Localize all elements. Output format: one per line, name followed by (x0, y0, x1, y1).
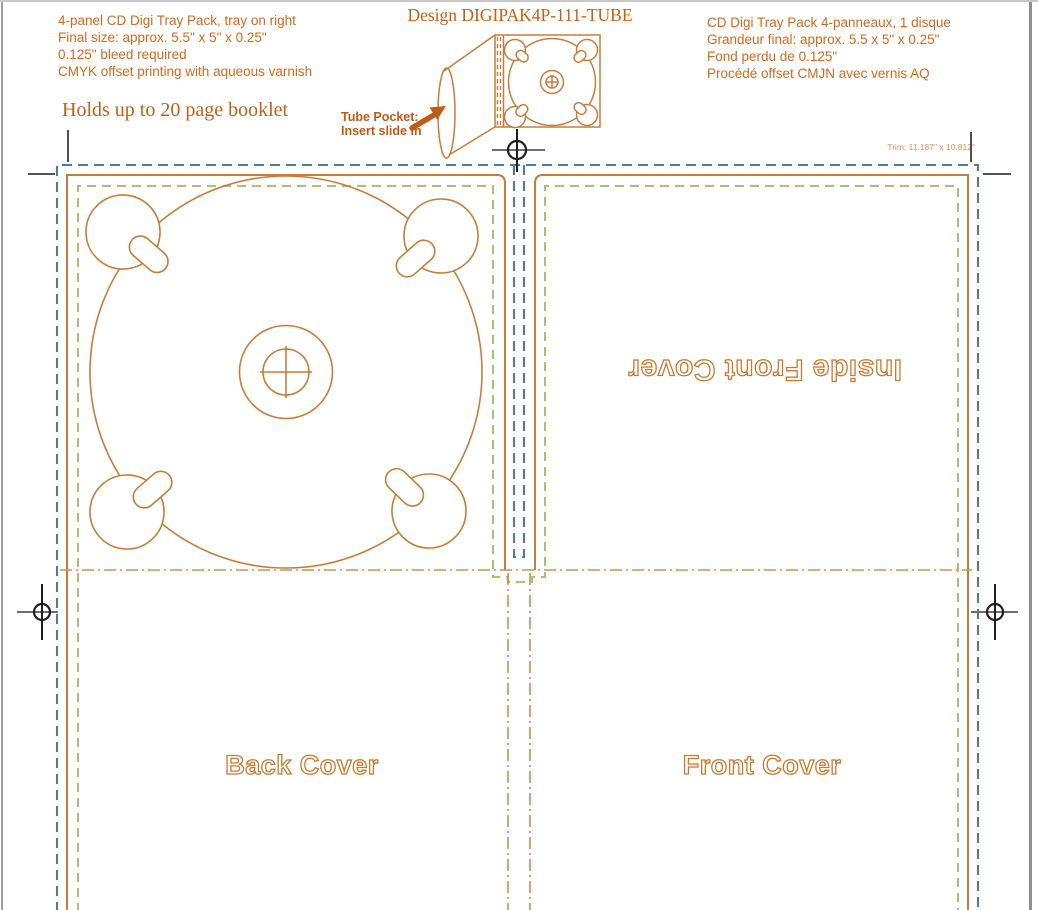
tube-flap-lines (444, 35, 495, 155)
trim-right-panel (535, 175, 968, 910)
tube-pocket-arrow-icon (412, 106, 446, 128)
registration-mark-left (17, 584, 58, 640)
case-clip-top-left (500, 35, 534, 68)
dieline-drawing (0, 0, 1038, 910)
bleed-guides (57, 165, 978, 910)
fold-lines (60, 570, 972, 910)
tray-clip-top-right (375, 184, 494, 301)
safe-area-guides (78, 186, 958, 910)
safe-outline (78, 186, 958, 910)
tray-clip-top-left (71, 180, 190, 297)
case-illustration (438, 35, 602, 158)
crop-marks (28, 130, 1011, 174)
bleed-outline (57, 165, 978, 910)
case-clip-bottom-right (568, 96, 602, 129)
cd-tray-diecut (71, 176, 493, 568)
tray-clip-bottom-right (363, 445, 481, 563)
template-page: 4-panel CD Digi Tray Pack, tray on right… (0, 0, 1038, 910)
bleed-spine-channel (514, 165, 524, 557)
tray-hub-crosshair (260, 346, 312, 398)
tray-clip-bottom-left (75, 447, 194, 564)
trim-cut-lines (67, 175, 968, 910)
case-hinge-dashed (498, 37, 501, 125)
case-clip-top-right (568, 35, 602, 68)
